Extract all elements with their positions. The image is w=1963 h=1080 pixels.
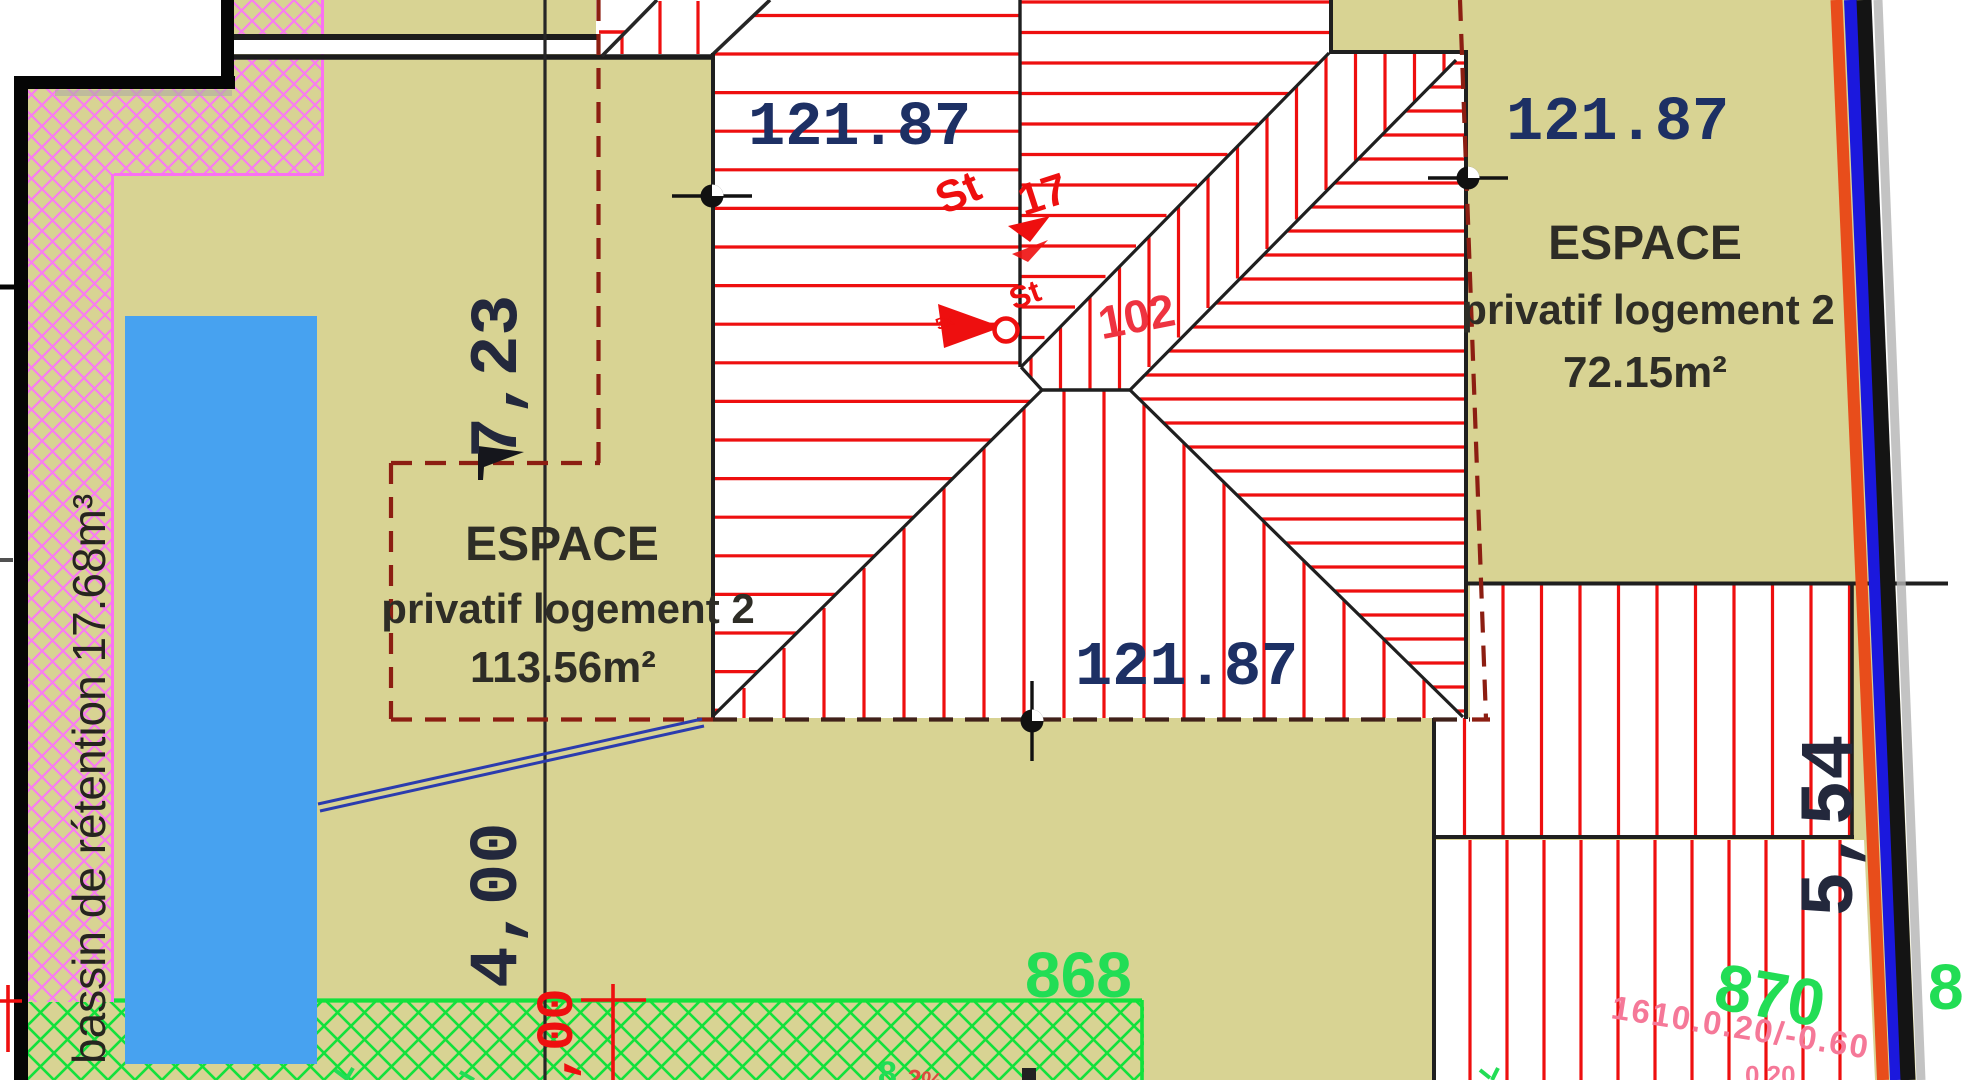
svg-text:8: 8 bbox=[1928, 951, 1963, 1023]
svg-text:7,23: 7,23 bbox=[460, 295, 537, 458]
svg-text:5,54: 5,54 bbox=[1789, 735, 1875, 917]
svg-text:868: 868 bbox=[1025, 939, 1132, 1011]
svg-text:4,00: 4,00 bbox=[459, 822, 537, 988]
svg-text:privatif logement 2: privatif logement 2 bbox=[1461, 286, 1834, 333]
svg-text:113.56m²: 113.56m² bbox=[470, 643, 656, 692]
svg-text:8: 8 bbox=[878, 1055, 897, 1080]
svg-text:121.87: 121.87 bbox=[748, 92, 971, 163]
svg-text:121.87: 121.87 bbox=[1506, 87, 1729, 158]
svg-text:privatif logement 2: privatif logement 2 bbox=[381, 585, 754, 632]
svg-text:,00: ,00 bbox=[529, 988, 588, 1080]
svg-text:ESPACE: ESPACE bbox=[1548, 217, 1742, 270]
svg-text:72.15m²: 72.15m² bbox=[1563, 348, 1727, 397]
svg-text:bassin de rétention 17.68m³: bassin de rétention 17.68m³ bbox=[63, 494, 115, 1064]
svg-text:ESPACE: ESPACE bbox=[465, 518, 659, 571]
svg-text:0.20: 0.20 bbox=[1745, 1060, 1796, 1080]
svg-text:121.87: 121.87 bbox=[1075, 632, 1298, 703]
